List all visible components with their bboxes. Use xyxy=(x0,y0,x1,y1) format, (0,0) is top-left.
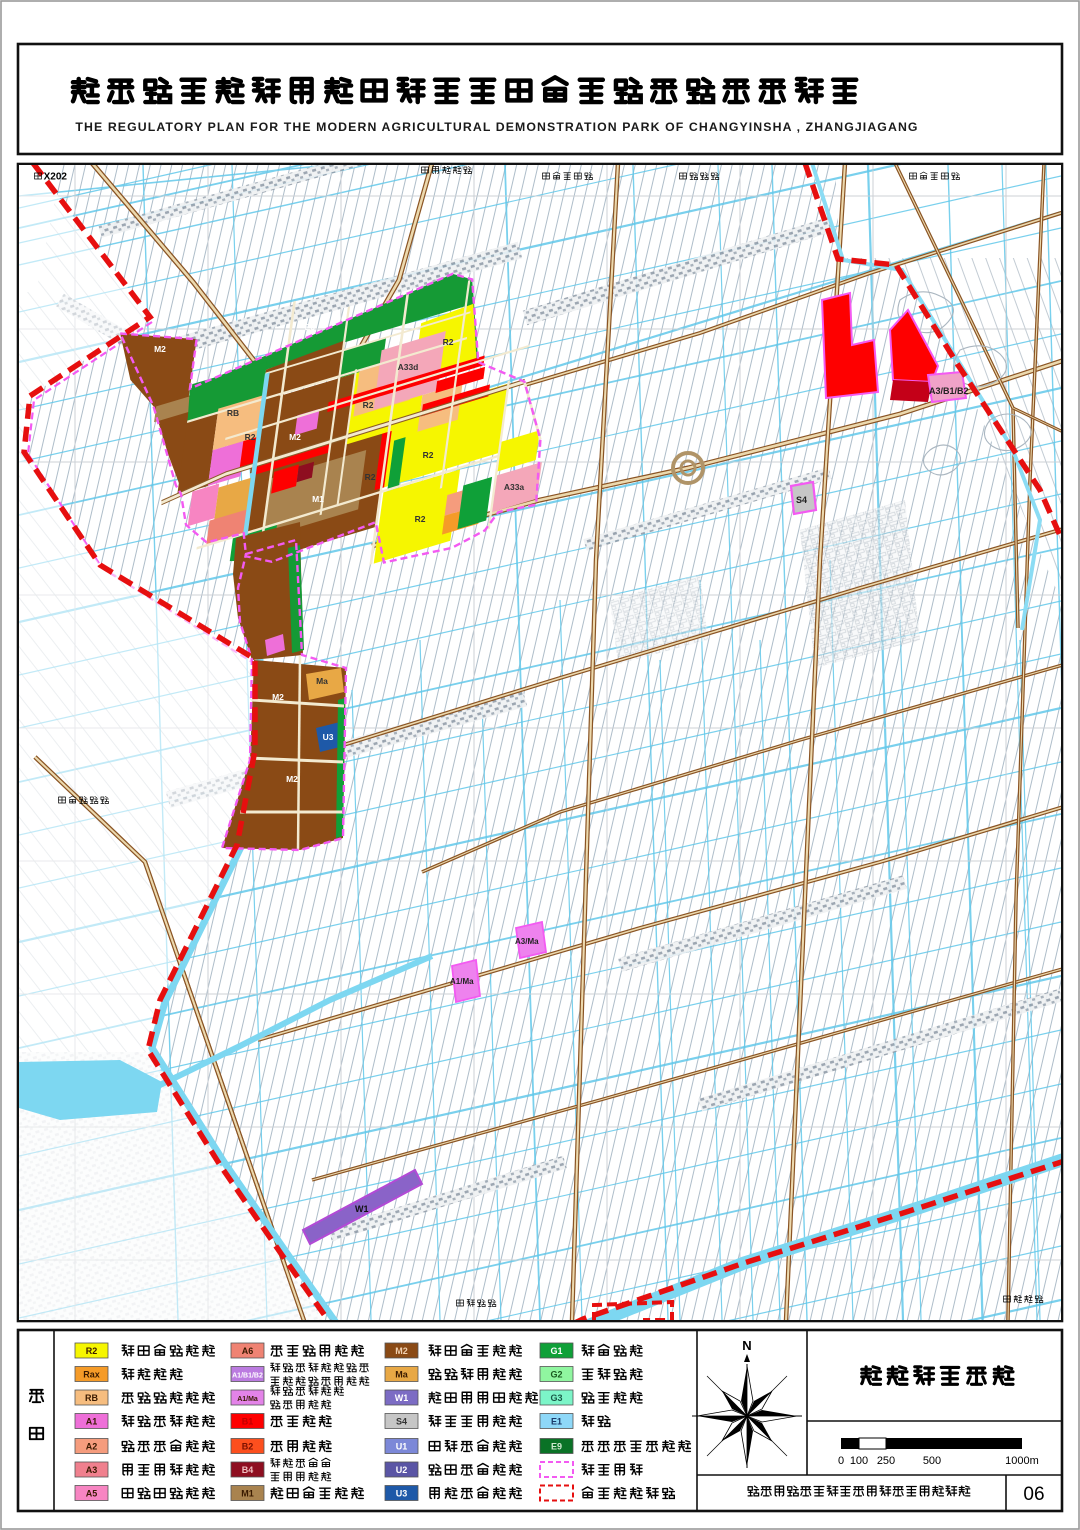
svg-text:W1: W1 xyxy=(355,1204,369,1214)
svg-text:A3/B1/B2: A3/B1/B2 xyxy=(929,386,969,396)
svg-text:R2: R2 xyxy=(443,337,454,347)
svg-text:250: 250 xyxy=(877,1455,895,1467)
svg-text:N: N xyxy=(742,1338,751,1353)
svg-text:RB: RB xyxy=(85,1393,98,1403)
svg-text:A1: A1 xyxy=(86,1417,98,1427)
svg-text:0: 0 xyxy=(838,1455,844,1467)
svg-text:E1: E1 xyxy=(551,1417,562,1427)
svg-text:M1: M1 xyxy=(312,494,324,504)
svg-text:S4: S4 xyxy=(796,495,807,505)
svg-text:A33d: A33d xyxy=(398,362,419,372)
svg-text:M2: M2 xyxy=(395,1346,408,1356)
svg-text:B2: B2 xyxy=(242,1442,254,1452)
svg-text:R2: R2 xyxy=(363,400,374,410)
svg-text:A6: A6 xyxy=(242,1346,254,1356)
svg-text:A2: A2 xyxy=(86,1442,98,1452)
svg-text:W1: W1 xyxy=(395,1393,409,1403)
svg-text:E9: E9 xyxy=(551,1442,562,1452)
svg-text:G1: G1 xyxy=(550,1346,562,1356)
svg-text:A33a: A33a xyxy=(504,482,525,492)
svg-text:M2: M2 xyxy=(289,432,301,442)
svg-text:Ma: Ma xyxy=(316,676,328,686)
svg-text:A1/Ma: A1/Ma xyxy=(450,977,474,986)
svg-text:R2: R2 xyxy=(423,450,434,460)
svg-text:G2: G2 xyxy=(550,1370,562,1380)
svg-text:B1: B1 xyxy=(242,1417,254,1427)
svg-text:A1/B1/B2: A1/B1/B2 xyxy=(232,1373,263,1380)
svg-text:M1: M1 xyxy=(241,1489,254,1499)
svg-text:E9: E9 xyxy=(305,322,316,332)
svg-text:X202: X202 xyxy=(44,172,68,183)
svg-text:06: 06 xyxy=(1023,1484,1044,1505)
svg-text:M2: M2 xyxy=(154,344,166,354)
svg-text:100: 100 xyxy=(850,1455,868,1467)
svg-text:U1: U1 xyxy=(396,1442,408,1452)
svg-text:R2: R2 xyxy=(365,472,376,482)
svg-text:R2: R2 xyxy=(245,432,256,442)
svg-text:Ma: Ma xyxy=(395,1370,408,1380)
svg-text:A3/Ma: A3/Ma xyxy=(515,937,539,946)
svg-text:Rax: Rax xyxy=(83,1370,100,1380)
svg-text:U2: U2 xyxy=(396,1465,408,1475)
svg-text:U3: U3 xyxy=(323,732,334,742)
svg-text:G3: G3 xyxy=(550,1393,562,1403)
svg-text:U3: U3 xyxy=(396,1489,408,1499)
svg-text:R2: R2 xyxy=(415,514,426,524)
svg-text:RB: RB xyxy=(227,408,239,418)
svg-text:R2: R2 xyxy=(86,1346,98,1356)
svg-text:A5: A5 xyxy=(86,1489,98,1499)
svg-text:S4: S4 xyxy=(396,1417,407,1427)
svg-text:500: 500 xyxy=(923,1455,941,1467)
svg-text:THE REGULATORY PLAN FOR THE MO: THE REGULATORY PLAN FOR THE MODERN AGRIC… xyxy=(75,120,918,134)
svg-text:1000m: 1000m xyxy=(1005,1455,1039,1467)
svg-text:A1/Ma: A1/Ma xyxy=(237,1396,258,1403)
svg-text:M2: M2 xyxy=(286,774,298,784)
svg-text:M2: M2 xyxy=(272,692,284,702)
svg-text:A3: A3 xyxy=(86,1465,98,1475)
svg-text:B4: B4 xyxy=(242,1465,254,1475)
